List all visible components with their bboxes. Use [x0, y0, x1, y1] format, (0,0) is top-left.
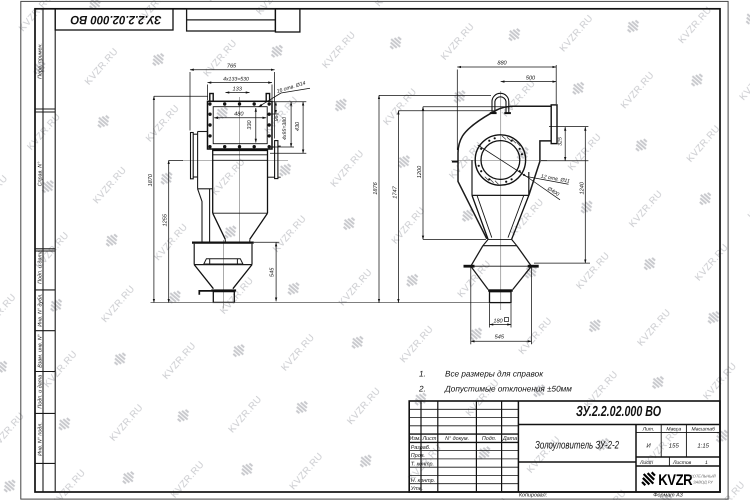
svg-text:Н. контр.: Н. контр. — [411, 478, 435, 484]
svg-text:1747: 1747 — [392, 185, 398, 198]
svg-text:Золоуловитель ЗУ-2-2: Золоуловитель ЗУ-2-2 — [535, 440, 619, 452]
svg-text:Формат А3: Формат А3 — [653, 493, 683, 499]
svg-text:N° докум.: N° докум. — [445, 436, 469, 442]
svg-text:1.: 1. — [419, 370, 426, 379]
svg-text:133: 133 — [233, 86, 243, 92]
svg-text:Масса: Масса — [666, 427, 681, 433]
svg-text:Т. контр.: Т. контр. — [411, 462, 434, 468]
svg-text:480: 480 — [234, 112, 244, 118]
svg-text:Разраб.: Разраб. — [411, 445, 431, 451]
svg-text:155: 155 — [669, 443, 680, 450]
svg-text:Лист: Лист — [421, 436, 436, 442]
svg-text:Копировал:: Копировал: — [519, 493, 548, 499]
svg-text:Лит.: Лит. — [642, 427, 655, 433]
svg-text:Изм.: Изм. — [409, 436, 421, 442]
svg-text:325: 325 — [558, 137, 564, 146]
svg-text:ЗУ.2.2.02.000 ВО: ЗУ.2.2.02.000 ВО — [576, 404, 662, 420]
svg-text:Листов: Листов — [672, 460, 692, 466]
svg-text:1200: 1200 — [417, 165, 423, 178]
svg-text:95: 95 — [274, 115, 280, 121]
svg-text:Взам. инв. N°: Взам. инв. N° — [38, 333, 44, 367]
svg-text:Перв. примен.: Перв. примен. — [38, 43, 44, 79]
svg-text:4x95=380: 4x95=380 — [282, 117, 288, 140]
svg-text:880: 880 — [497, 61, 507, 67]
svg-text:Лист: Лист — [639, 460, 653, 466]
svg-text:Пров.: Пров. — [411, 453, 425, 459]
svg-text:Все размеры для справок: Все размеры для справок — [445, 370, 544, 379]
svg-text:1:15: 1:15 — [697, 443, 709, 450]
svg-text:Масштаб: Масштаб — [692, 427, 716, 433]
svg-text:Инв. N° дубл.: Инв. N° дубл. — [38, 293, 44, 326]
svg-text:Подп. и дата: Подп. и дата — [38, 250, 44, 284]
svg-text:4x133=530: 4x133=530 — [223, 76, 249, 82]
svg-text:Инв. N° подл.: Инв. N° подл. — [38, 422, 44, 456]
svg-text:И: И — [646, 443, 651, 450]
svg-text:1876: 1876 — [373, 181, 379, 194]
svg-text:180: 180 — [493, 318, 503, 324]
svg-text:КОТЕЛЬНЫЙ: КОТЕЛЬНЫЙ — [690, 474, 715, 479]
svg-text:Дата: Дата — [502, 436, 517, 442]
svg-text:Подп.: Подп. — [482, 436, 496, 442]
svg-text:1240: 1240 — [579, 181, 585, 194]
svg-text:Подп. и дата: Подп. и дата — [38, 375, 44, 409]
svg-text:ЗАВОД РУ: ЗАВОД РУ — [693, 480, 713, 485]
svg-text:1870: 1870 — [148, 173, 154, 186]
svg-text:Допустимые отклонения ±50мм: Допустимые отклонения ±50мм — [444, 384, 572, 393]
svg-text:765: 765 — [227, 63, 237, 69]
svg-text:1: 1 — [705, 460, 708, 466]
svg-text:1255: 1255 — [163, 213, 169, 226]
svg-text:2.: 2. — [418, 384, 426, 393]
svg-text:330: 330 — [247, 119, 253, 129]
svg-text:Справ. N°: Справ. N° — [38, 161, 44, 187]
svg-text:500: 500 — [526, 75, 536, 81]
svg-text:ЗУ.2.2.02.000 ВО: ЗУ.2.2.02.000 ВО — [70, 13, 162, 27]
svg-text:430: 430 — [295, 121, 301, 131]
svg-text:KVZR: KVZR — [658, 472, 692, 489]
svg-text:545: 545 — [269, 267, 275, 277]
svg-text:Утв.: Утв. — [410, 486, 423, 492]
svg-text:545: 545 — [495, 335, 505, 341]
